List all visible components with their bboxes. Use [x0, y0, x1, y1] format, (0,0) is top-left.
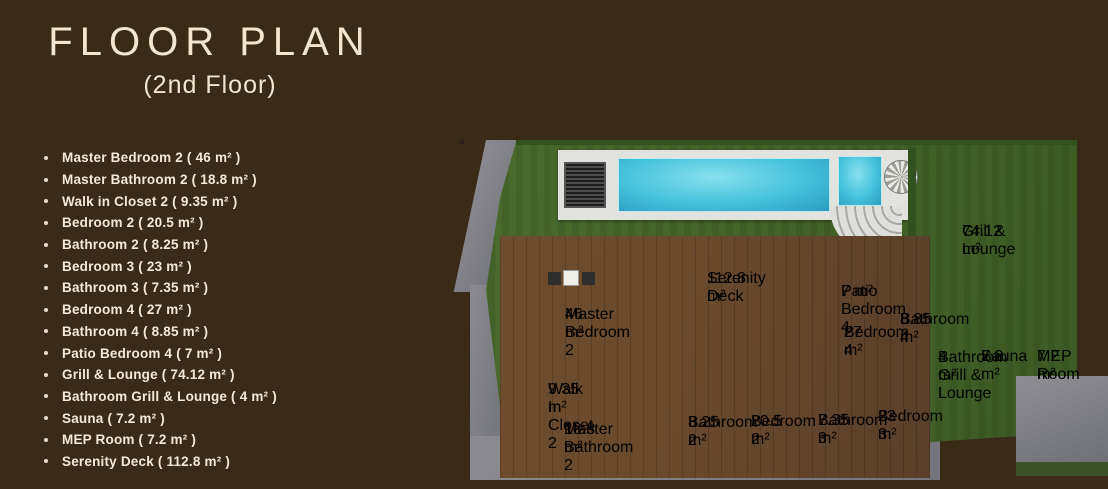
bullet-dot	[44, 394, 48, 398]
floor-plan-image: Serenity Deck 112.8 m² Master Bedroom 2 …	[460, 140, 1108, 489]
info-panel: FLOOR PLAN (2nd Floor) Master Bedroom 2 …	[0, 0, 460, 489]
bullet-dot	[44, 459, 48, 463]
pool-grate	[564, 162, 606, 208]
room-list-item-label: Bedroom 3 ( 23 m² )	[62, 259, 192, 274]
room-list-item: Bedroom 2 ( 20.5 m² )	[38, 212, 277, 234]
room-list-item: Bathroom Grill & Lounge ( 4 m² )	[38, 386, 277, 408]
pavement-bottom-right	[1016, 376, 1108, 464]
room-list-item: Bathroom 2 ( 8.25 m² )	[38, 234, 277, 256]
bullet-dot	[44, 156, 48, 160]
room-list-item: MEP Room ( 7.2 m² )	[38, 429, 277, 451]
bullet-dot	[44, 199, 48, 203]
bullet-dot	[44, 416, 48, 420]
room-list-item-label: Bedroom 2 ( 20.5 m² )	[62, 215, 203, 230]
room-list-item: Bathroom 4 ( 8.85 m² )	[38, 321, 277, 343]
round-basin-icon	[563, 270, 579, 286]
room-list: Master Bedroom 2 ( 46 m² ) Master Bathro…	[38, 147, 277, 472]
room-list-item-label: Bedroom 4 ( 27 m² )	[62, 302, 192, 317]
bullet-dot	[44, 351, 48, 355]
room-list-item: Grill & Lounge ( 74.12 m² )	[38, 364, 277, 386]
bullet-dot	[44, 221, 48, 225]
bullet-dot	[44, 308, 48, 312]
bullet-dot	[44, 286, 48, 290]
grass-strip-bottom-right	[1016, 462, 1108, 476]
room-list-item: Walk in Closet 2 ( 9.35 m² )	[38, 190, 277, 212]
bullet-dot	[44, 178, 48, 182]
decor-rosette-icon	[582, 272, 595, 285]
room-list-item: Master Bedroom 2 ( 46 m² )	[38, 147, 277, 169]
floor-plan-page: FLOOR PLAN (2nd Floor) Master Bedroom 2 …	[0, 0, 1108, 489]
bullet-dot	[44, 373, 48, 377]
decor-rosette-icon	[548, 272, 561, 285]
room-list-item: Patio Bedroom 4 ( 7 m² )	[38, 342, 277, 364]
room-list-item-label: Sauna ( 7.2 m² )	[62, 411, 165, 426]
room-list-item-label: Bathroom 4 ( 8.85 m² )	[62, 324, 208, 339]
bed-canopy	[710, 388, 794, 397]
bullet-dot	[44, 329, 48, 333]
bullet-dot	[44, 264, 48, 268]
room-list-item-label: Walk in Closet 2 ( 9.35 m² )	[62, 194, 237, 209]
room-list-item-label: Patio Bedroom 4 ( 7 m² )	[62, 346, 222, 361]
room-list-item-label: Master Bathroom 2 ( 18.8 m² )	[62, 172, 257, 187]
room-list-item: Bedroom 4 ( 27 m² )	[38, 299, 277, 321]
bullet-dot	[44, 438, 48, 442]
room-list-item-label: Bathroom Grill & Lounge ( 4 m² )	[62, 389, 277, 404]
bullet-dot	[44, 243, 48, 247]
room-list-item-label: Bathroom 3 ( 7.35 m² )	[62, 280, 208, 295]
room-list-item: Bedroom 3 ( 23 m² )	[38, 255, 277, 277]
room-list-item: Master Bathroom 2 ( 18.8 m² )	[38, 169, 277, 191]
room-list-item-label: Serenity Deck ( 112.8 m² )	[62, 454, 230, 469]
patio-planter	[460, 140, 464, 144]
room-list-item: Serenity Deck ( 112.8 m² )	[38, 451, 277, 473]
room-list-item-label: Grill & Lounge ( 74.12 m² )	[62, 367, 235, 382]
pillow	[882, 372, 898, 379]
room-list-item: Bathroom 3 ( 7.35 m² )	[38, 277, 277, 299]
page-subtitle: (2nd Floor)	[0, 71, 420, 100]
room-list-item-label: MEP Room ( 7.2 m² )	[62, 432, 196, 447]
room-list-item-label: Bathroom 2 ( 8.25 m² )	[62, 237, 208, 252]
page-title: FLOOR PLAN	[0, 20, 420, 65]
swimming-pool	[618, 158, 830, 212]
pillow	[860, 372, 876, 379]
room-list-item: Sauna ( 7.2 m² )	[38, 407, 277, 429]
room-list-item-label: Master Bedroom 2 ( 46 m² )	[62, 150, 241, 165]
